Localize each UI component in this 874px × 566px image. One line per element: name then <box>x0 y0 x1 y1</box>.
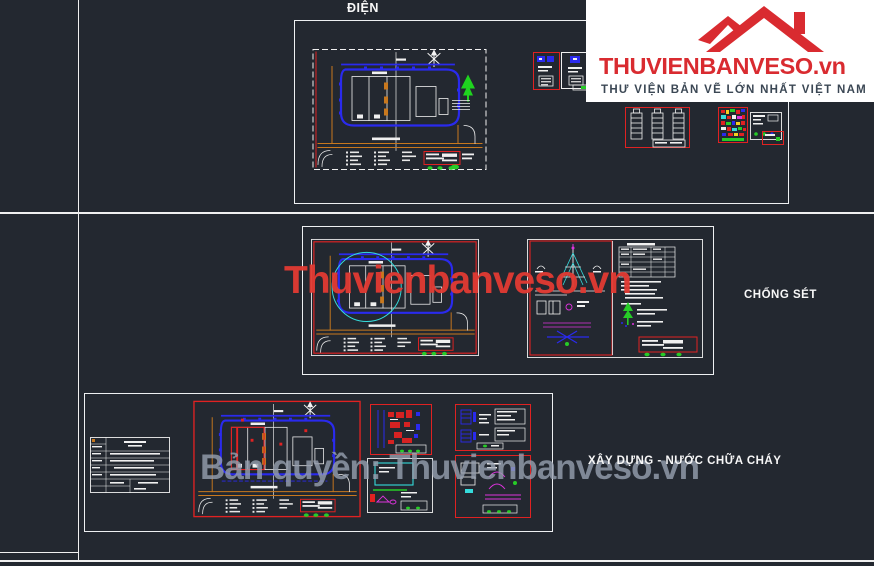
logo-tagline: THƯ VIỆN BẢN VẼ LỚN NHẤT VIỆT NAM <box>601 84 867 96</box>
cad-preview-canvas: ĐIỆN <box>0 0 874 566</box>
watermark-bottom: Bản quyền: Thuvienbanveso.vn <box>200 448 699 488</box>
elevation-detail-panel <box>718 107 748 143</box>
electrical-legend-panel-1 <box>533 52 560 90</box>
elevation-tag <box>762 131 784 145</box>
separator-horizontal-bottom <box>0 560 874 562</box>
electrical-site-plan-drawing <box>312 44 487 175</box>
watermark-center: Thuvienbanveso.vn <box>284 259 631 303</box>
column-details-panel <box>625 107 690 148</box>
water-title-block-table <box>90 437 170 493</box>
pump-detail-panel-1 <box>455 404 531 451</box>
section-label-water: XÂY DỰNG - NƯỚC CHỮA CHÁY <box>588 455 781 467</box>
separator-vertical-left <box>78 0 79 561</box>
tree-icon <box>623 302 633 325</box>
tree-icon <box>461 75 475 102</box>
section-label-electrical: ĐIỆN <box>347 1 379 15</box>
roof-icon <box>698 2 830 56</box>
logo-domain-text: .vn <box>813 53 846 79</box>
separator-horizontal-middle <box>0 212 874 214</box>
logo-brand-text: THUVIENBANVESO.vn <box>599 53 846 80</box>
separator-horizontal-bottom-left <box>0 552 78 553</box>
logo: THUVIENBANVESO.vn THƯ VIỆN BẢN VẼ LỚN NH… <box>586 0 874 102</box>
section-label-lightning: CHỐNG SÉT <box>744 289 817 301</box>
